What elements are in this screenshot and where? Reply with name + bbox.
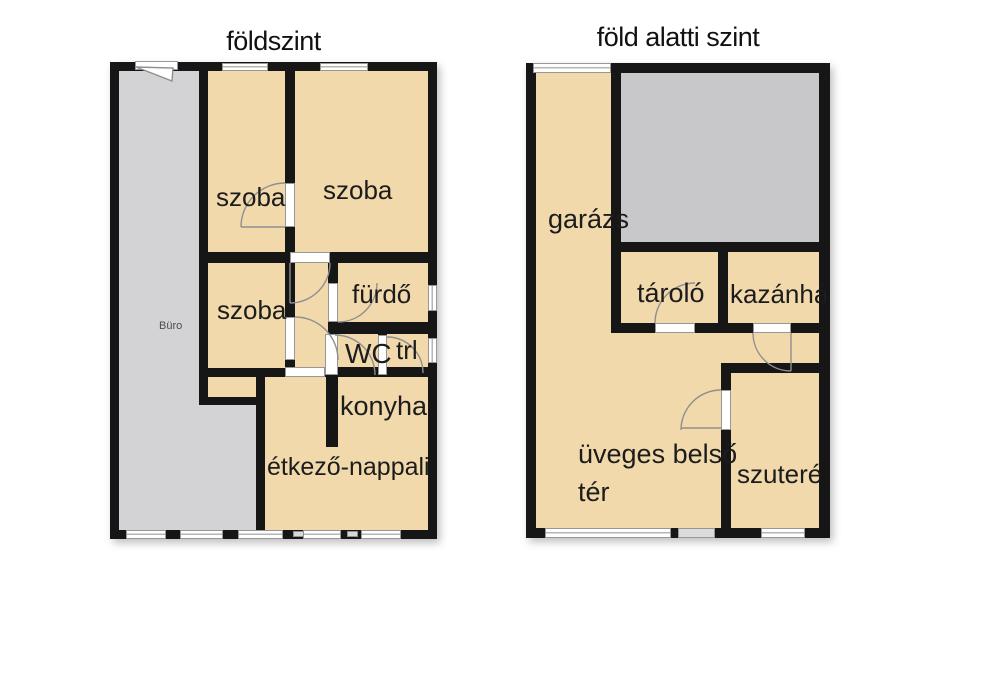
label-szoba-1: szoba: [216, 183, 285, 211]
buro-entry-door: [135, 61, 178, 70]
label-furdo: fürdő: [352, 280, 411, 308]
basement-title: föld alatti szint: [526, 22, 830, 53]
hall-konyha-door: [285, 367, 325, 377]
bottom-window-1: [126, 530, 166, 539]
room-szuteren: [731, 373, 819, 528]
room-szoba-2: [295, 71, 428, 252]
label-uveges-line2: tér: [578, 478, 610, 507]
room-hallway: [295, 263, 328, 367]
bottom-window-5: [361, 530, 401, 539]
szuteren-door: [721, 390, 731, 430]
tarolo-door: [655, 323, 695, 333]
furdo-window: [428, 285, 437, 311]
kazanhaz-door: [753, 323, 791, 333]
room-szoba-1: [208, 71, 285, 252]
room-terrain: [621, 73, 819, 242]
label-buro: Büro: [159, 321, 182, 333]
trl-window: [428, 338, 437, 363]
ground-floor-title: földszint: [110, 26, 437, 57]
furdo-door: [328, 283, 338, 322]
uveges-bottom-window: [545, 528, 671, 538]
label-garazs: garázs: [548, 205, 629, 234]
label-konyha: konyha: [340, 392, 427, 421]
szoba3-hall-door: [285, 317, 295, 360]
label-tarolo: tároló: [637, 279, 705, 308]
bottom-sill-mark-2: [347, 531, 358, 537]
wc-door: [325, 334, 338, 375]
szuteren-bottom-window: [761, 528, 805, 538]
bottom-window-4: [303, 530, 341, 539]
szoba2-top-window: [320, 63, 368, 71]
szoba2-hall-door: [290, 252, 330, 263]
room-buro-lower: [119, 405, 256, 530]
label-uveges-line1: üveges belső: [578, 440, 737, 469]
room-closet-notch: [208, 377, 256, 397]
bottom-window-3: [238, 530, 283, 539]
szoba1-top-window: [222, 63, 268, 71]
label-etkezo-nappali: étkező-nappali: [267, 454, 430, 481]
label-szoba-3: szoba: [217, 296, 286, 324]
garage-door: [533, 63, 611, 73]
bottom-window-2: [180, 530, 223, 539]
label-trl: trl: [396, 336, 418, 364]
exterior-door: [678, 528, 715, 538]
bottom-sill-mark-1: [293, 531, 304, 537]
room-corridor: [611, 333, 819, 363]
floorplan-canvas: földszint Büro szoba szoba sz: [0, 0, 982, 679]
label-kazanhaz: kazánház: [730, 280, 826, 308]
label-wc: WC: [345, 339, 392, 369]
konyha-partition-wall: [326, 377, 338, 447]
szoba1-szoba2-door: [285, 183, 295, 227]
label-szuteren: szuterén: [737, 460, 822, 488]
label-szoba-2: szoba: [323, 176, 392, 204]
